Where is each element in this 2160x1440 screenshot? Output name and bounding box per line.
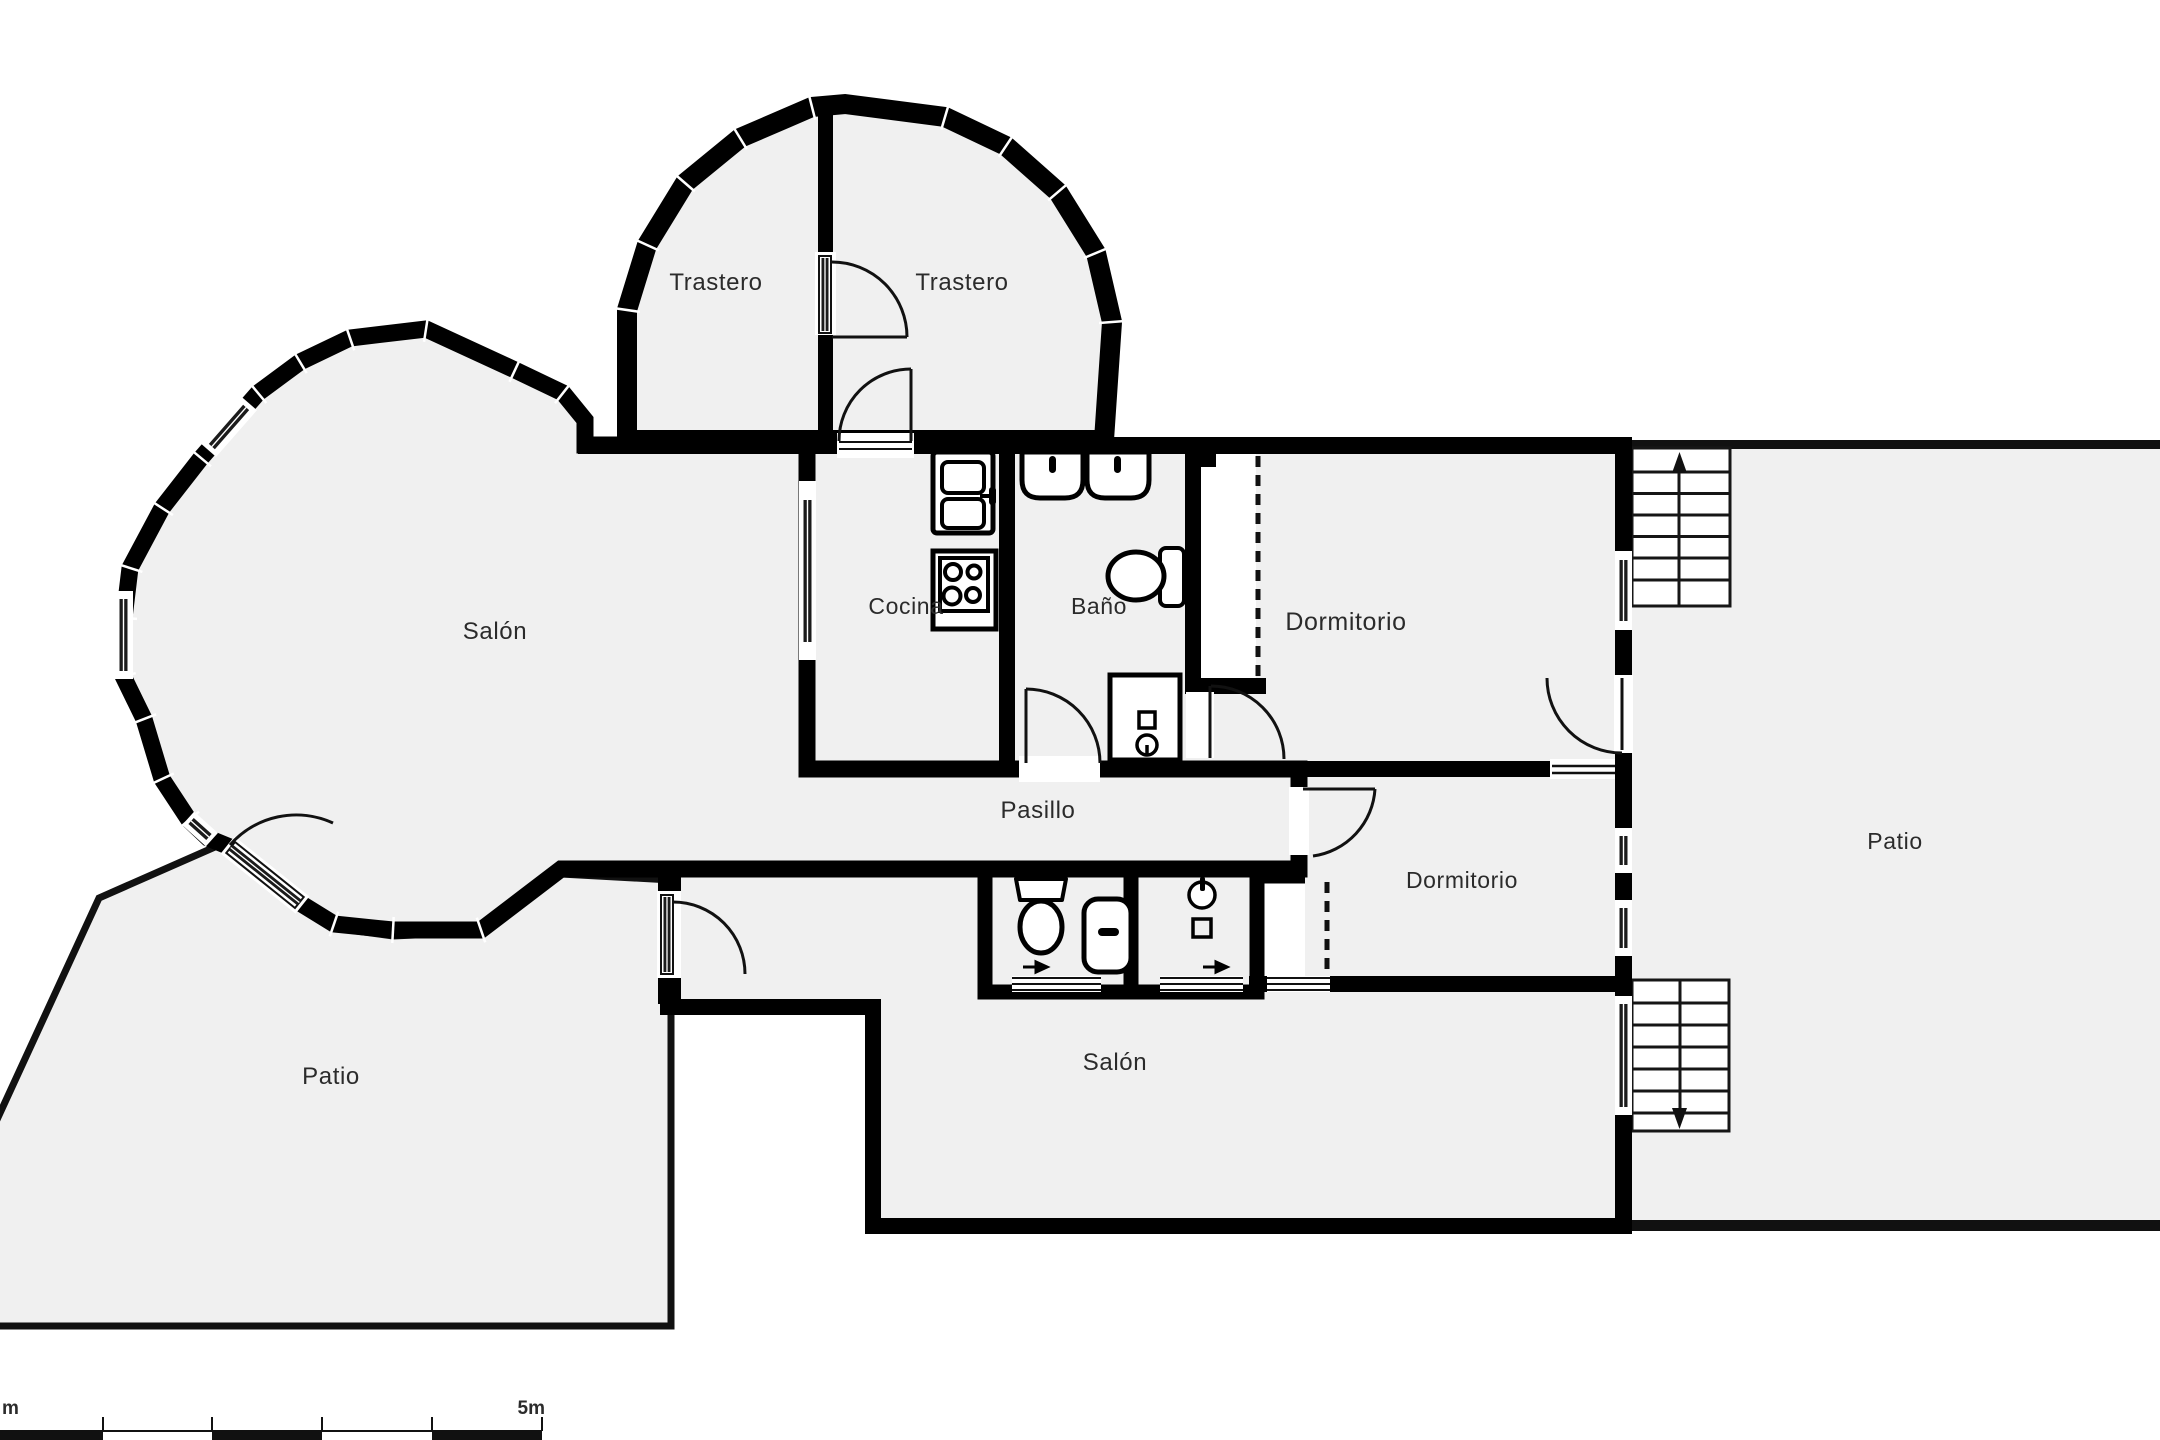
- svg-text:Baño: Baño: [1071, 593, 1127, 619]
- svg-text:Dormitorio: Dormitorio: [1285, 608, 1406, 636]
- svg-text:m: m: [2, 1398, 19, 1419]
- svg-text:Pasillo: Pasillo: [1001, 797, 1076, 824]
- svg-text:5m: 5m: [518, 1398, 545, 1419]
- svg-text:Salón: Salón: [463, 618, 527, 645]
- svg-text:Dormitorio: Dormitorio: [1406, 867, 1518, 893]
- svg-text:Trastero: Trastero: [669, 269, 762, 296]
- svg-text:Patio: Patio: [1867, 828, 1922, 854]
- svg-text:Patio: Patio: [302, 1063, 360, 1090]
- svg-text:Salón: Salón: [1083, 1049, 1147, 1076]
- svg-text:Cocina: Cocina: [868, 593, 943, 619]
- svg-text:Trastero: Trastero: [915, 269, 1008, 296]
